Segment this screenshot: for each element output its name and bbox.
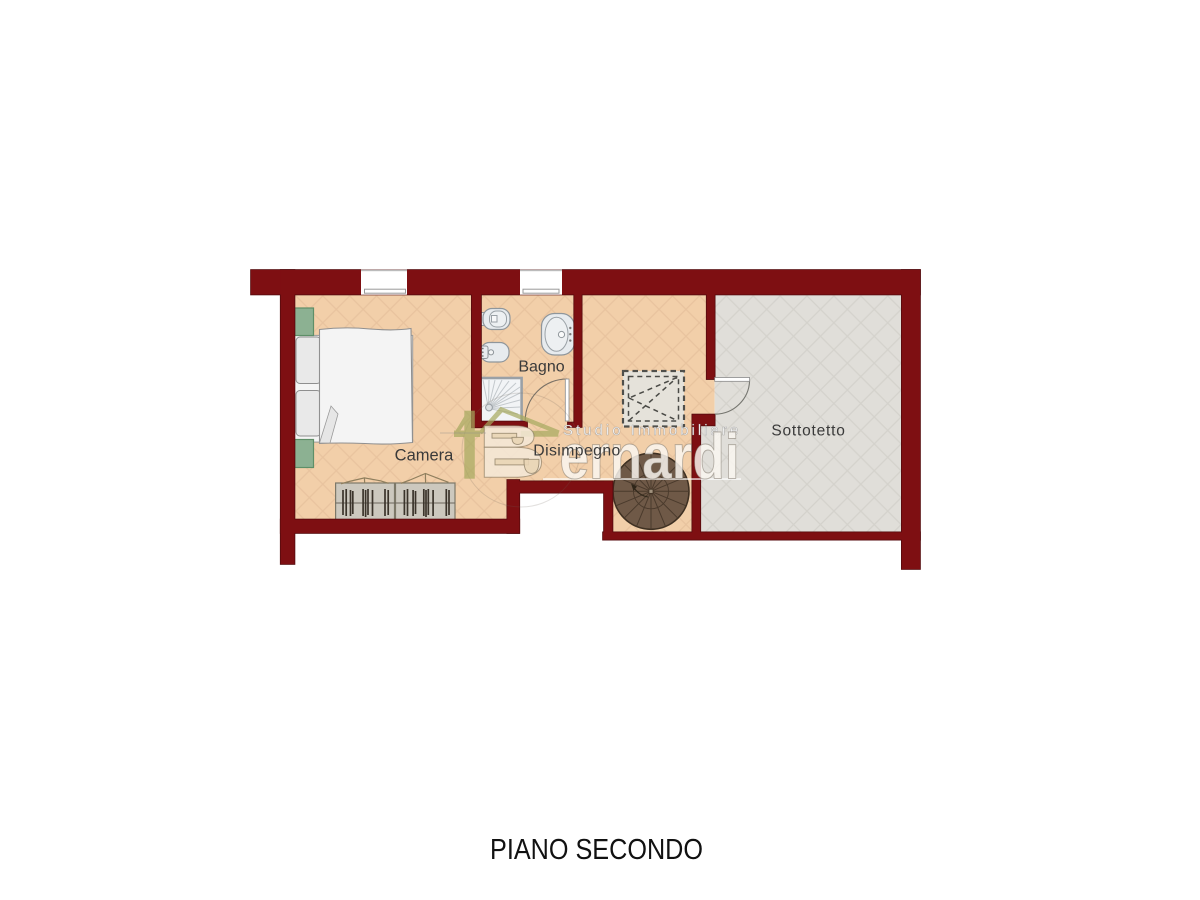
svg-text:PIANO SECONDO: PIANO SECONDO [490, 834, 703, 866]
svg-text:Disimpegno: Disimpegno [533, 443, 620, 460]
svg-text:Sottotetto: Sottotetto [771, 423, 845, 440]
svg-text:Bagno: Bagno [518, 359, 564, 376]
svg-text:Camera: Camera [395, 447, 455, 465]
